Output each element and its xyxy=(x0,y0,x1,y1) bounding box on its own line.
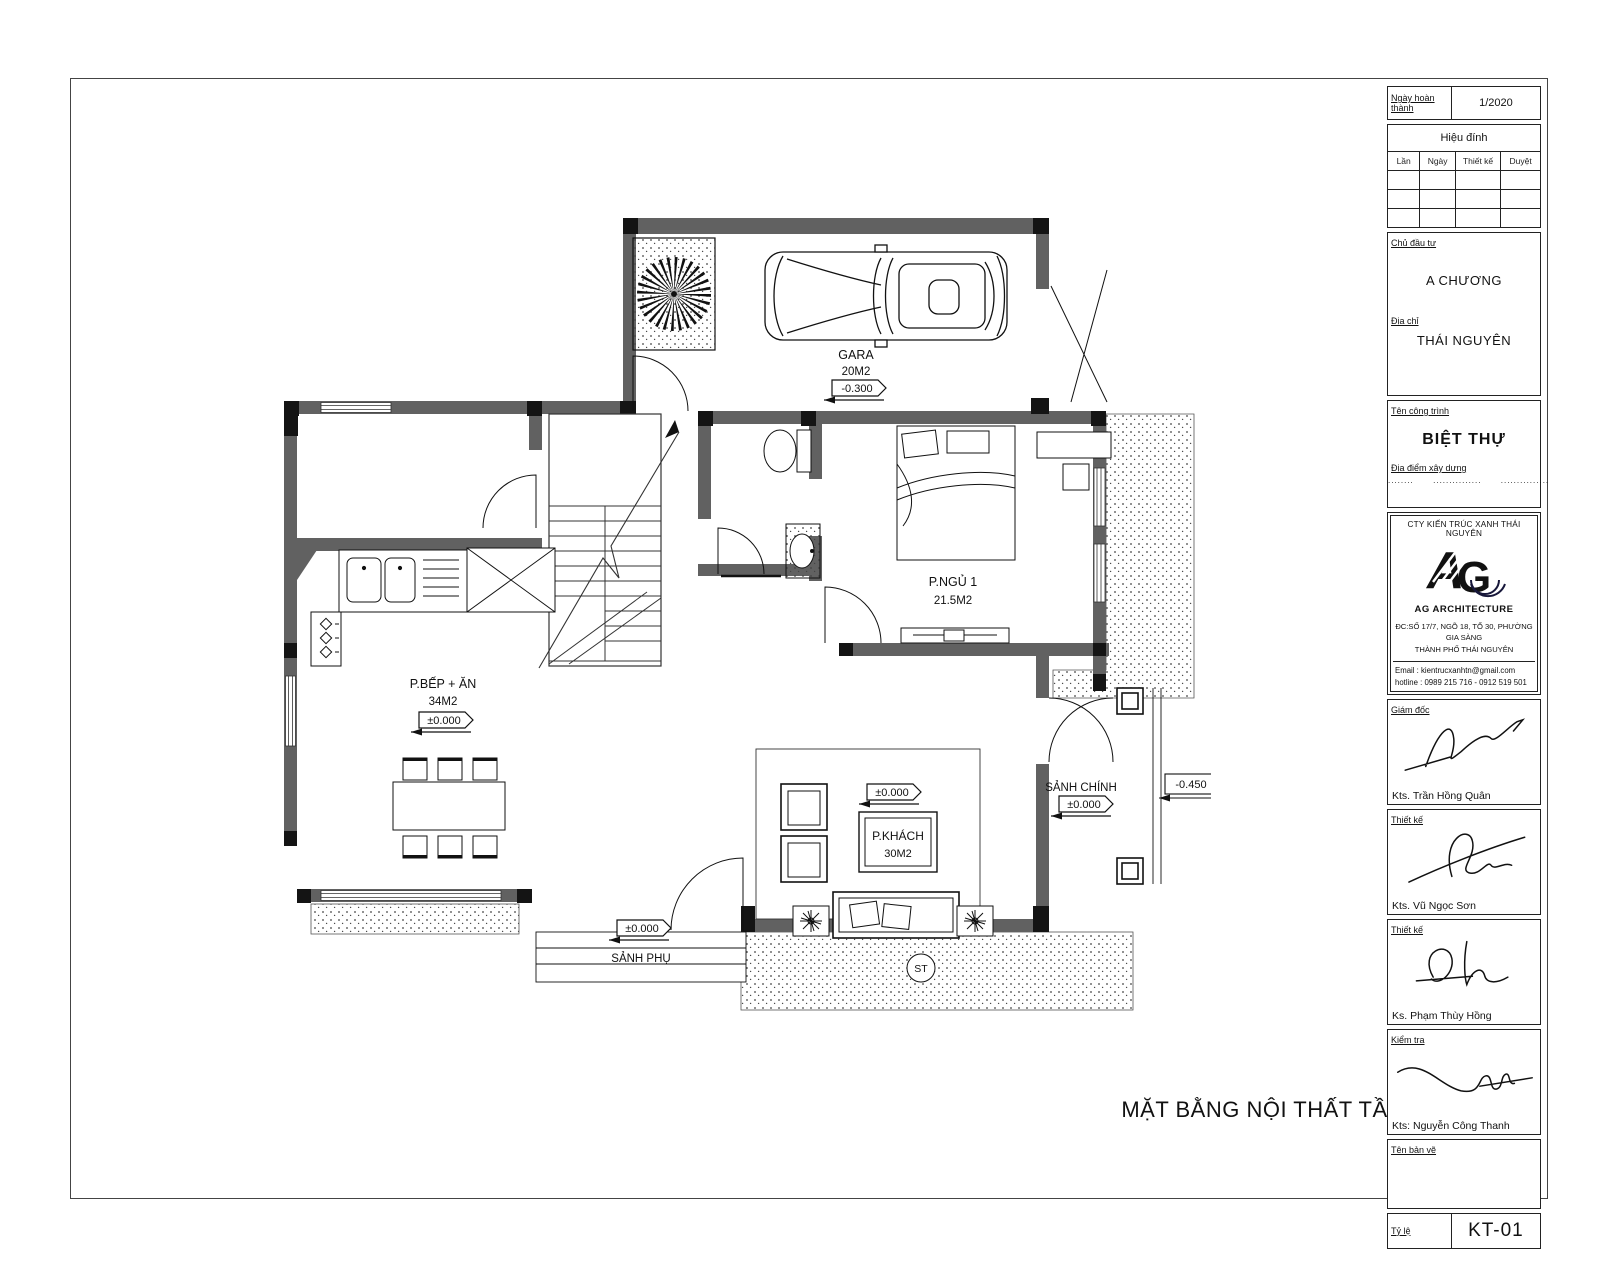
side-hall-door xyxy=(671,858,743,930)
kitchen-fixtures xyxy=(311,548,555,666)
toilet-icon xyxy=(764,430,811,472)
rev-col-duyet: Duyệt xyxy=(1501,152,1540,171)
plant-icon xyxy=(957,906,993,936)
signer-name: Ks. Phạm Thùy Hồng xyxy=(1392,1010,1492,1022)
client-box: Chủ đầu tư A CHƯƠNG Địa chỉ THÁI NGUYÊN xyxy=(1387,232,1541,396)
project-box: Tên công trình BIỆT THỰ Địa điểm xây dựn… xyxy=(1387,400,1541,508)
signer-director: Giám đốc Kts. Trần Hồng Quân xyxy=(1387,699,1541,805)
svg-text:G: G xyxy=(1457,553,1491,598)
signer-designer-2: Thiết kế Ks. Phạm Thùy Hồng xyxy=(1387,919,1541,1025)
desk xyxy=(1037,432,1111,458)
garage-label: GARA xyxy=(838,348,874,362)
svg-text:±0.000: ±0.000 xyxy=(427,715,461,727)
bedroom-door xyxy=(825,587,881,643)
garage-house-door xyxy=(633,356,688,411)
side-hall-label: SẢNH PHỤ xyxy=(611,952,670,965)
garage-door-swing xyxy=(1051,270,1107,402)
stairs-icon xyxy=(539,414,679,668)
living-label: P.KHÁCH xyxy=(872,828,924,843)
bedroom-furniture xyxy=(825,426,1111,643)
armchair xyxy=(781,784,827,830)
address-value: THÁI NGUYÊN xyxy=(1388,333,1540,348)
drawing-title: MẶT BẰNG NỘI THẤT TẦNG 1 xyxy=(1021,1097,1441,1123)
signature-icon xyxy=(1394,710,1534,780)
drawing-name-label: Tên bản vẽ xyxy=(1388,1143,1439,1157)
chair xyxy=(1063,464,1089,490)
dining-table xyxy=(393,782,505,830)
svg-text:±0.000: ±0.000 xyxy=(625,923,659,935)
company-brand: AG ARCHITECTURE xyxy=(1393,604,1535,615)
outside-level: -0.450 xyxy=(1159,774,1211,802)
revision-table: Hiệu đính Lần Ngày Thiết kế Duyệt xyxy=(1387,124,1541,228)
completion-date-row: Ngày hoàn thành 1/2020 xyxy=(1387,86,1541,120)
sink-counter xyxy=(339,550,467,612)
rev-col-ngay: Ngày xyxy=(1420,152,1456,171)
svg-text:-0.300: -0.300 xyxy=(841,383,872,395)
living-furniture xyxy=(756,749,993,938)
site-dots: ........ ............... ............... xyxy=(1388,476,1540,485)
site-label: Địa điểm xây dựng xyxy=(1388,461,1470,475)
plant-icon xyxy=(793,906,829,936)
project-label: Tên công trình xyxy=(1388,404,1452,418)
main-hall-label: SẢNH CHÍNH xyxy=(1045,781,1117,794)
outdoor-columns xyxy=(1117,688,1143,884)
title-block: Ngày hoàn thành 1/2020 Hiệu đính Lần Ngà… xyxy=(1387,86,1541,1249)
car-icon xyxy=(765,245,1007,347)
company-email: Email : kientrucxanhtn@gmail.com xyxy=(1395,665,1535,677)
sofa xyxy=(833,892,959,938)
bathroom-fixtures xyxy=(718,430,820,578)
scale-row: Tỷ lệ KT-01 xyxy=(1387,1213,1541,1249)
signature-icon xyxy=(1394,820,1534,890)
signature-icon xyxy=(1394,930,1534,1000)
company-addr1: ĐC:SỐ 17/7, NGÕ 18, TỔ 30, PHƯỜNG GIA SÀ… xyxy=(1393,621,1535,644)
svg-text:34M2: 34M2 xyxy=(429,696,458,708)
signer-checker: Kiểm tra Kts: Nguyễn Công Thanh xyxy=(1387,1029,1541,1135)
address-label: Địa chỉ xyxy=(1388,314,1422,328)
kitchen-label: P.BẾP + ĂN xyxy=(410,676,477,691)
drawing-sheet: GARA 20M2 -0.300 P.NGỦ 1 21.5M2 P.BẾP + … xyxy=(70,78,1548,1199)
svg-text:21.5M2: 21.5M2 xyxy=(934,595,972,607)
ag-logo-icon: A G xyxy=(1409,540,1519,598)
rev-col-lan: Lần xyxy=(1388,152,1420,171)
svg-text:±0.000: ±0.000 xyxy=(1067,799,1101,811)
bedroom-label: P.NGỦ 1 xyxy=(929,574,977,589)
company-name: CTY KIẾN TRÚC XANH THÁI NGUYÊN xyxy=(1393,520,1535,538)
step-mark: ST xyxy=(914,963,928,975)
svg-text:±0.000: ±0.000 xyxy=(875,787,909,799)
client-label: Chủ đầu tư xyxy=(1388,236,1439,250)
signer-name: Kts. Trần Hồng Quân xyxy=(1392,790,1491,802)
rev-col-thietke: Thiết kế xyxy=(1456,152,1501,171)
client-name: A CHƯƠNG xyxy=(1388,273,1540,288)
hall-door xyxy=(483,475,536,528)
date-label: Ngày hoàn thành xyxy=(1388,91,1451,115)
sill-hatch xyxy=(311,904,519,934)
company-addr2: THÀNH PHỐ THÁI NGUYÊN xyxy=(1393,644,1535,655)
porch-hatch xyxy=(741,932,1133,1010)
floor-plan: GARA 20M2 -0.300 P.NGỦ 1 21.5M2 P.BẾP + … xyxy=(281,206,1211,1016)
dining-set xyxy=(393,758,505,858)
company-hotline: hotline : 0989 215 716 - 0912 519 501 xyxy=(1395,677,1535,689)
signature-icon xyxy=(1394,1040,1534,1110)
company-box: CTY KIẾN TRÚC XANH THÁI NGUYÊN A G AG AR… xyxy=(1387,512,1541,695)
drawing-name-box: Tên bản vẽ xyxy=(1387,1139,1541,1209)
svg-text:-0.450: -0.450 xyxy=(1175,779,1206,791)
signer-name: Kts. Vũ Ngọc Sơn xyxy=(1392,900,1476,912)
signer-designer-1: Thiết kế Kts. Vũ Ngọc Sơn xyxy=(1387,809,1541,915)
svg-text:20M2: 20M2 xyxy=(842,366,871,378)
date-value: 1/2020 xyxy=(1451,87,1540,119)
scale-label: Tỷ lệ xyxy=(1388,1224,1414,1238)
signer-name: Kts: Nguyễn Công Thanh xyxy=(1392,1120,1510,1132)
armchair xyxy=(781,836,827,882)
revision-title: Hiệu đính xyxy=(1388,125,1540,152)
sheet-number: KT-01 xyxy=(1451,1214,1540,1248)
svg-text:30M2: 30M2 xyxy=(884,848,912,860)
project-name: BIỆT THỰ xyxy=(1388,431,1540,449)
